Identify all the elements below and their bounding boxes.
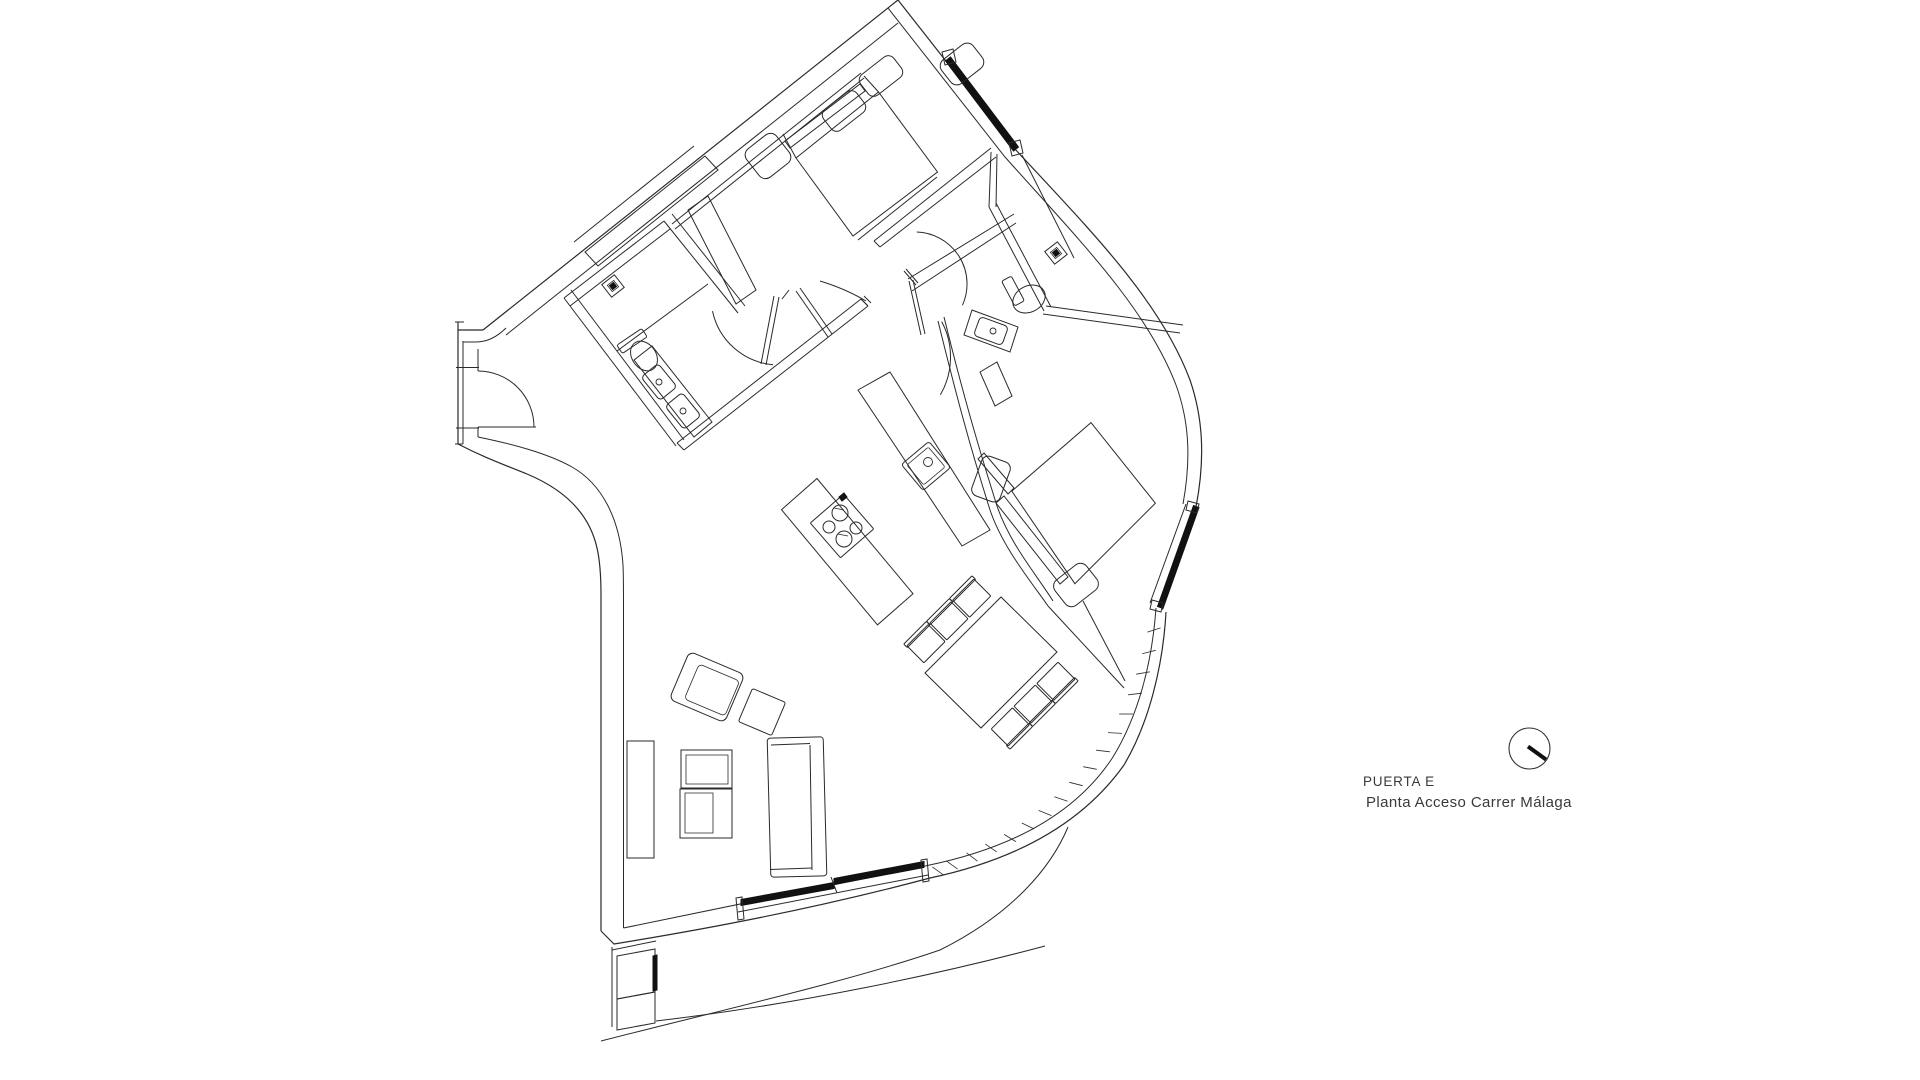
svg-text:PUERTA E: PUERTA E <box>1363 774 1435 789</box>
svg-text:Planta Acceso Carrer Málaga: Planta Acceso Carrer Málaga <box>1366 794 1572 811</box>
